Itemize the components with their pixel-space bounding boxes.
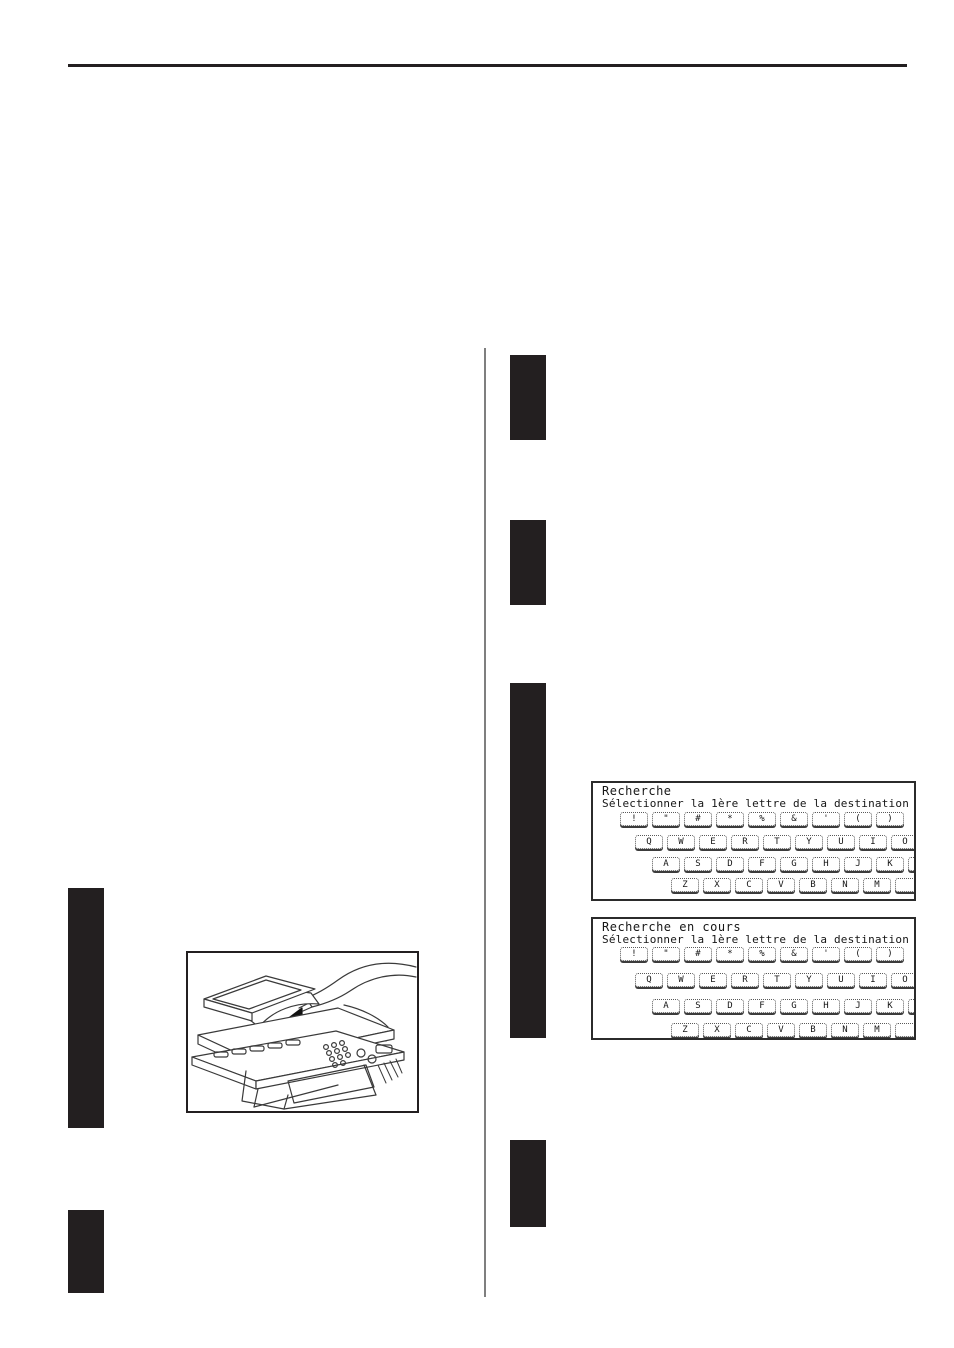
screen-key: # [684, 947, 712, 961]
screen-key: X [703, 1023, 731, 1037]
screen-key: T [763, 835, 791, 849]
screen-key: ) [876, 947, 904, 961]
screen-key: H [812, 999, 840, 1013]
screen-key: " [652, 812, 680, 826]
redacted-text-block [510, 520, 546, 605]
screen-key: % [748, 812, 776, 826]
copier-figure [186, 951, 419, 1113]
screen-key: I [859, 973, 887, 987]
screen-key [895, 1023, 916, 1037]
screen-key: F [748, 999, 776, 1013]
screen-key: Q [635, 835, 663, 849]
screen-key: W [667, 835, 695, 849]
screen-key: I [859, 835, 887, 849]
manual-page: Recherche Sélectionner la 1ère lettre de… [0, 0, 954, 1348]
screen-key: K [876, 857, 904, 871]
screen-key: N [831, 878, 859, 892]
screen-key: ' [812, 812, 840, 826]
screen-key: ! [620, 947, 648, 961]
screen-key: ) [876, 812, 904, 826]
screen-key: " [652, 947, 680, 961]
screen-key: * [716, 947, 744, 961]
screen-key: S [684, 857, 712, 871]
lcd-screen-recherche-en-cours: Recherche en cours Sélectionner la 1ère … [591, 917, 916, 1040]
screen-key: & [780, 947, 808, 961]
screen-key: M [863, 878, 891, 892]
screen-key: # [684, 812, 712, 826]
screen-key: * [716, 812, 744, 826]
screen-key: G [780, 857, 808, 871]
screen-key: U [827, 973, 855, 987]
lcd-screen-recherche: Recherche Sélectionner la 1ère lettre de… [591, 781, 916, 901]
screen-key: C [735, 1023, 763, 1037]
screen-key: A [652, 857, 680, 871]
screen-key: N [831, 1023, 859, 1037]
screen-key: ' [812, 947, 840, 961]
screen-key: B [799, 878, 827, 892]
screen-key: B [799, 1023, 827, 1037]
screen-key: W [667, 973, 695, 987]
screen-key: J [844, 999, 872, 1013]
screen-key: D [716, 999, 744, 1013]
screen-key: C [735, 878, 763, 892]
redacted-text-block [510, 683, 546, 1038]
screen-key [908, 857, 916, 871]
screen-keyboard: !"#*%&'()QWERTYUIOASDFGHJKZXCVBNM [593, 919, 914, 1038]
redacted-text-block [510, 355, 546, 440]
column-divider [484, 348, 486, 1297]
screen-key: E [699, 973, 727, 987]
screen-key: O [891, 835, 916, 849]
redacted-text-block [68, 1210, 104, 1293]
screen-key [895, 878, 916, 892]
screen-key: V [767, 878, 795, 892]
screen-key: Z [671, 1023, 699, 1037]
screen-key: T [763, 973, 791, 987]
screen-key: R [731, 835, 759, 849]
screen-key: Q [635, 973, 663, 987]
screen-key: J [844, 857, 872, 871]
screen-key: K [876, 999, 904, 1013]
screen-key: U [827, 835, 855, 849]
screen-key: D [716, 857, 744, 871]
screen-key: Y [795, 835, 823, 849]
screen-key: ! [620, 812, 648, 826]
screen-key: ( [844, 812, 872, 826]
screen-key: A [652, 999, 680, 1013]
screen-key: G [780, 999, 808, 1013]
screen-key: % [748, 947, 776, 961]
screen-key: Z [671, 878, 699, 892]
redacted-text-block [510, 1140, 546, 1227]
screen-key: Y [795, 973, 823, 987]
screen-key: V [767, 1023, 795, 1037]
screen-key: O [891, 973, 916, 987]
copier-illustration [188, 953, 417, 1111]
screen-key: M [863, 1023, 891, 1037]
screen-key: ( [844, 947, 872, 961]
screen-keyboard: !"#*%&'()QWERTYUIOASDFGHJKZXCVBNM [593, 783, 914, 899]
screen-key: X [703, 878, 731, 892]
redacted-text-block [68, 888, 104, 1128]
screen-key: & [780, 812, 808, 826]
screen-key: F [748, 857, 776, 871]
screen-key: S [684, 999, 712, 1013]
header-rule [68, 64, 907, 67]
screen-key: E [699, 835, 727, 849]
screen-key [908, 999, 916, 1013]
screen-key: H [812, 857, 840, 871]
screen-key: R [731, 973, 759, 987]
